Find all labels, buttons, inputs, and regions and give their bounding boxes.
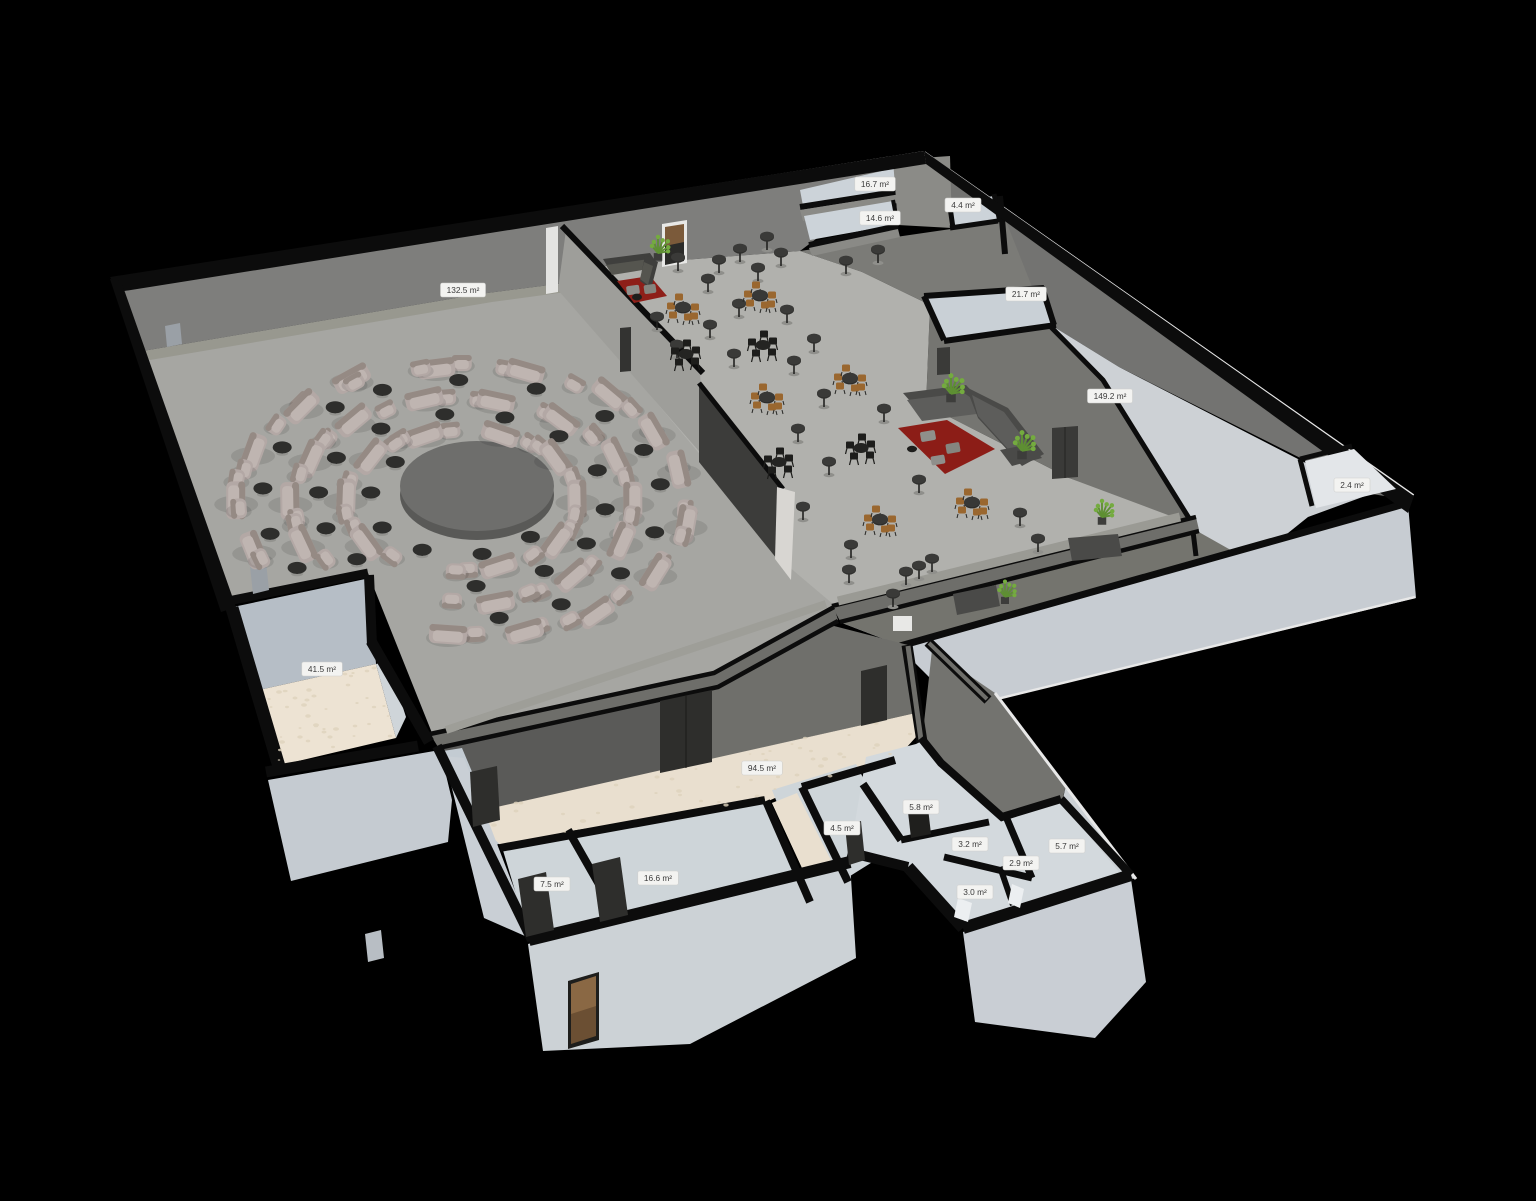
svg-text:14.6 m²: 14.6 m² — [866, 213, 894, 223]
svg-text:94.5 m²: 94.5 m² — [748, 763, 776, 773]
svg-text:7.5 m²: 7.5 m² — [540, 879, 564, 889]
svg-text:2.4 m²: 2.4 m² — [1340, 480, 1364, 490]
svg-text:16.7 m²: 16.7 m² — [861, 179, 889, 189]
svg-text:132.5 m²: 132.5 m² — [447, 285, 480, 295]
svg-text:41.5 m²: 41.5 m² — [308, 664, 336, 674]
svg-text:149.2 m²: 149.2 m² — [1094, 391, 1127, 401]
svg-text:5.7 m²: 5.7 m² — [1055, 841, 1079, 851]
svg-text:4.4 m²: 4.4 m² — [951, 200, 975, 210]
svg-text:21.7 m²: 21.7 m² — [1012, 289, 1040, 299]
svg-text:4.5 m²: 4.5 m² — [830, 823, 854, 833]
svg-text:3.2 m²: 3.2 m² — [958, 839, 982, 849]
svg-text:16.6 m²: 16.6 m² — [644, 873, 672, 883]
svg-text:5.8 m²: 5.8 m² — [909, 802, 933, 812]
svg-text:3.0 m²: 3.0 m² — [963, 887, 987, 897]
svg-text:2.9 m²: 2.9 m² — [1009, 858, 1033, 868]
